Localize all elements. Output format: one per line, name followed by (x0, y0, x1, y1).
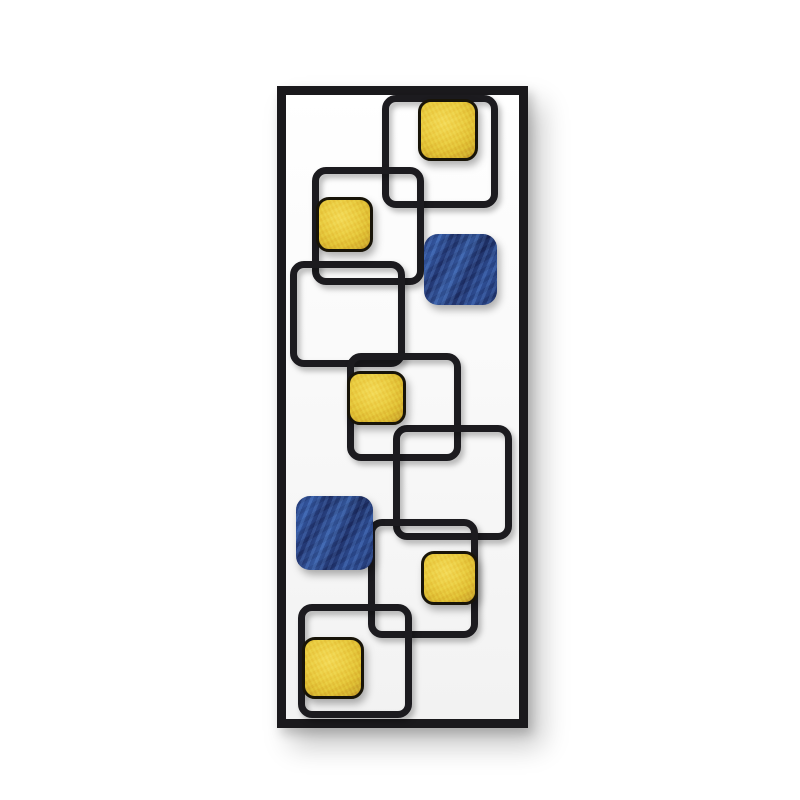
gold-panel-1 (418, 99, 478, 161)
gold-panel-6 (421, 551, 478, 605)
blue-panel-3 (424, 234, 497, 305)
wire-square-3 (290, 261, 405, 367)
gold-panel-7 (302, 637, 364, 699)
gold-panel-2 (316, 197, 373, 252)
product-photo-canvas (0, 0, 800, 800)
blue-panel-5 (296, 496, 373, 570)
gold-panel-4 (347, 371, 406, 425)
